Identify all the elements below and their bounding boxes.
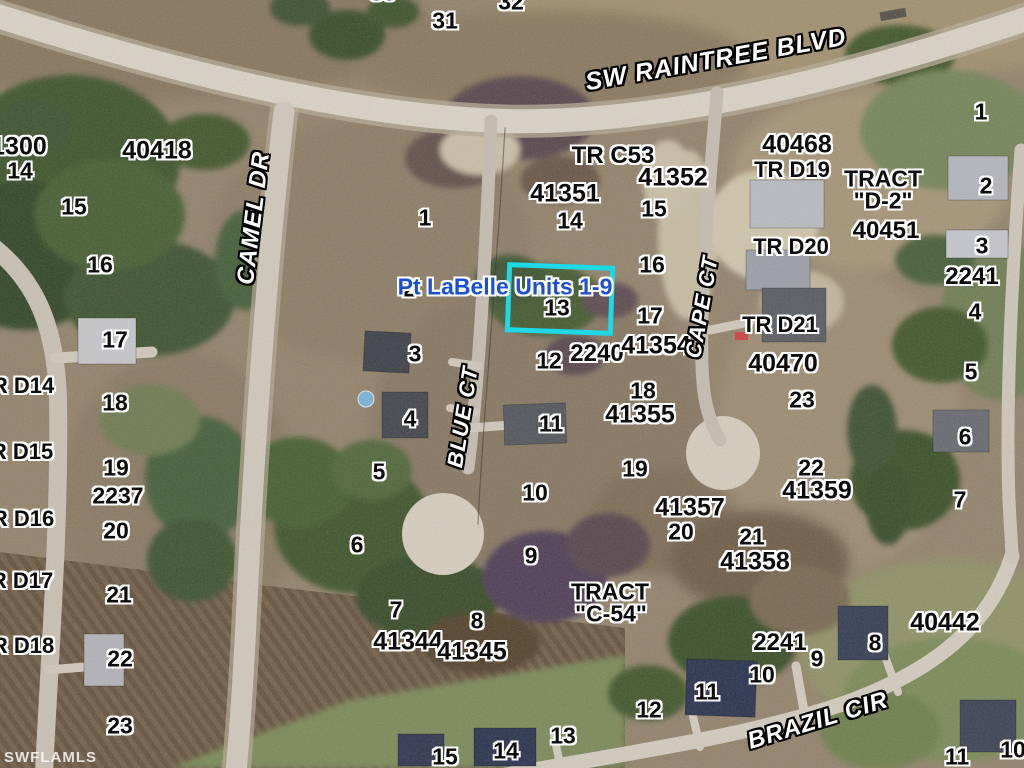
parcel-label: 41355	[605, 403, 675, 428]
parcel-label: 41358	[720, 550, 790, 575]
road-name-label: BLUE CT	[444, 365, 482, 470]
parcel-label: 18	[102, 392, 128, 415]
parcel-label: 4	[404, 408, 417, 431]
parcel-label: 5	[965, 361, 978, 384]
parcel-label: 10	[522, 482, 548, 505]
parcel-label: 10	[1000, 739, 1024, 762]
parcel-label: 12	[536, 350, 562, 373]
parcel-label: TR D19	[754, 159, 830, 181]
parcel-label: 19	[103, 457, 129, 480]
parcel-label: 7	[954, 489, 967, 512]
parcel-label: 22	[107, 648, 133, 671]
parcel-label: 21	[106, 584, 132, 607]
parcel-label: 14	[557, 210, 583, 233]
parcel-label: 40418	[122, 139, 192, 164]
parcel-label: R D16	[0, 508, 54, 530]
plat-title-label: Pt LaBelle Units 1-9	[398, 274, 613, 301]
parcel-label: 21	[739, 526, 765, 549]
parcel-label: TR D20	[753, 236, 829, 258]
parcel-label: 1	[975, 101, 988, 124]
map-labels: 303132413001440418151617R D1418R D151922…	[0, 0, 1024, 768]
parcel-label: 9	[811, 648, 824, 671]
parcel-label: 3	[409, 343, 422, 366]
parcel-label: R D17	[0, 570, 53, 592]
road-name-label: SW RAINTREE BLVD	[584, 25, 849, 96]
parcel-label: 16	[639, 254, 665, 277]
parcel-label: 41352	[638, 166, 708, 191]
mls-watermark: SWFLAMLS	[4, 749, 97, 766]
parcel-label: 32	[498, 0, 524, 14]
parcel-label: 6	[959, 426, 972, 449]
parcel-label: 4	[969, 301, 982, 324]
parcel-label: 17	[637, 305, 663, 328]
parcel-label: 23	[107, 715, 133, 738]
parcel-label: 20	[668, 521, 694, 544]
parcel-label: 2	[980, 175, 993, 198]
parcel-label: 31	[432, 10, 458, 33]
parcel-label: 15	[61, 196, 87, 219]
parcel-label: 13	[550, 725, 576, 748]
parcel-label: 9	[525, 545, 538, 568]
aerial-plat-map: 303132413001440418151617R D1418R D151922…	[0, 0, 1024, 768]
parcel-label: 19	[622, 458, 648, 481]
parcel-label: 40470	[748, 352, 818, 377]
parcel-label: 14	[493, 740, 519, 763]
road-name-label: CAMEL DR	[234, 150, 274, 286]
parcel-label: 2240	[570, 342, 623, 366]
parcel-label: 10	[749, 664, 775, 687]
road-name-label: BRAZIL CIR	[745, 688, 891, 754]
parcel-label: TR D21	[742, 314, 818, 336]
parcel-label: 15	[641, 198, 667, 221]
parcel-label: "D-2"	[854, 190, 913, 213]
parcel-label: 15	[432, 746, 458, 768]
parcel-label: 6	[351, 534, 364, 557]
parcel-label: 18	[630, 380, 656, 403]
parcel-label: 41359	[782, 479, 852, 504]
parcel-label: R D14	[0, 375, 54, 397]
parcel-label: 16	[87, 254, 113, 277]
parcel-label: 8	[471, 610, 484, 633]
parcel-label: 17	[102, 329, 128, 352]
parcel-label: 3	[976, 235, 989, 258]
parcel-label: 23	[789, 389, 815, 412]
parcel-label: 11	[539, 413, 563, 436]
parcel-label: 11	[695, 681, 719, 704]
parcel-label: 1	[419, 207, 432, 230]
parcel-label: 5	[373, 461, 386, 484]
parcel-label: 20	[103, 520, 129, 543]
parcel-label: 12	[636, 699, 662, 722]
parcel-label: 40451	[853, 219, 920, 243]
road-name-label: CAPE CT	[682, 254, 722, 360]
parcel-label: 14	[7, 160, 33, 183]
parcel-label: "C-54"	[575, 603, 647, 626]
parcel-label: 30	[370, 0, 396, 5]
parcel-label: 2237	[92, 485, 143, 508]
parcel-label: 2241	[753, 631, 806, 655]
parcel-label: 41300	[0, 135, 47, 160]
parcel-label: 40442	[910, 611, 980, 636]
parcel-label: 41345	[437, 640, 507, 665]
parcel-label: 41344	[373, 630, 443, 655]
parcel-label: 8	[869, 632, 882, 655]
parcel-label: 11	[945, 746, 969, 768]
parcel-label: 7	[390, 599, 403, 622]
parcel-label: R D18	[0, 635, 54, 657]
parcel-label: 41351	[530, 182, 600, 207]
parcel-label: 2241	[945, 265, 998, 289]
parcel-label: 40468	[762, 133, 832, 158]
parcel-label: 41357	[655, 496, 725, 521]
parcel-label: R D15	[0, 441, 53, 463]
